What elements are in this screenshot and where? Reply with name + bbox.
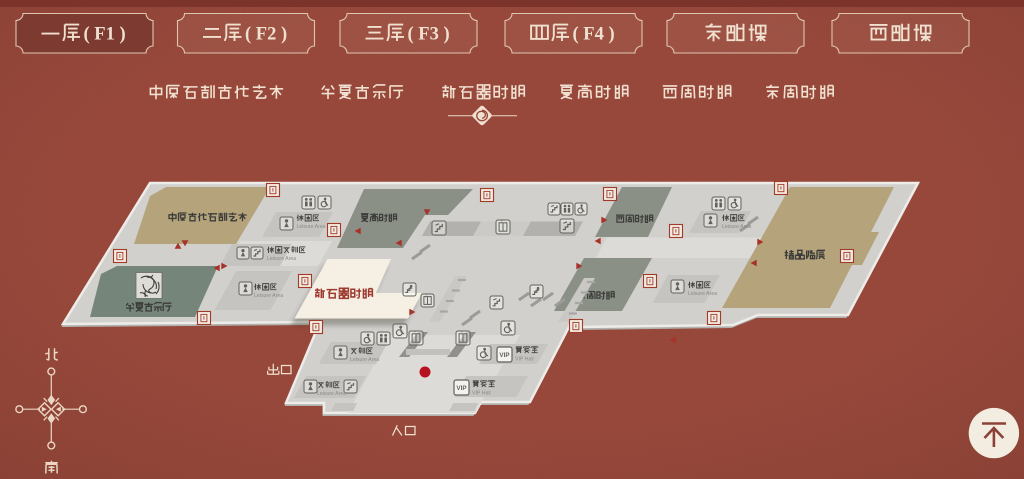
svg-text:Leisure Area: Leisure Area (317, 391, 346, 397)
svg-text:( F3 ): ( F3 ) (408, 25, 450, 45)
svg-text:Leisure Area: Leisure Area (267, 256, 296, 262)
svg-text:VIP Hall: VIP Hall (515, 357, 534, 363)
svg-text:( F2 ): ( F2 ) (245, 25, 287, 45)
svg-text:Leisure Area: Leisure Area (688, 291, 717, 297)
svg-text:VIP: VIP (499, 352, 509, 359)
svg-text:( F4 ): ( F4 ) (573, 25, 615, 45)
svg-text:Leisure Area: Leisure Area (254, 293, 283, 299)
svg-text:VIP: VIP (456, 385, 466, 392)
svg-text:Leisure Area: Leisure Area (297, 224, 326, 230)
svg-text:Leisure Area: Leisure Area (722, 224, 751, 230)
svg-text:Leisure Area: Leisure Area (350, 357, 379, 363)
svg-text:( F1 ): ( F1 ) (84, 25, 126, 45)
svg-text:VIP Hall: VIP Hall (472, 391, 491, 397)
